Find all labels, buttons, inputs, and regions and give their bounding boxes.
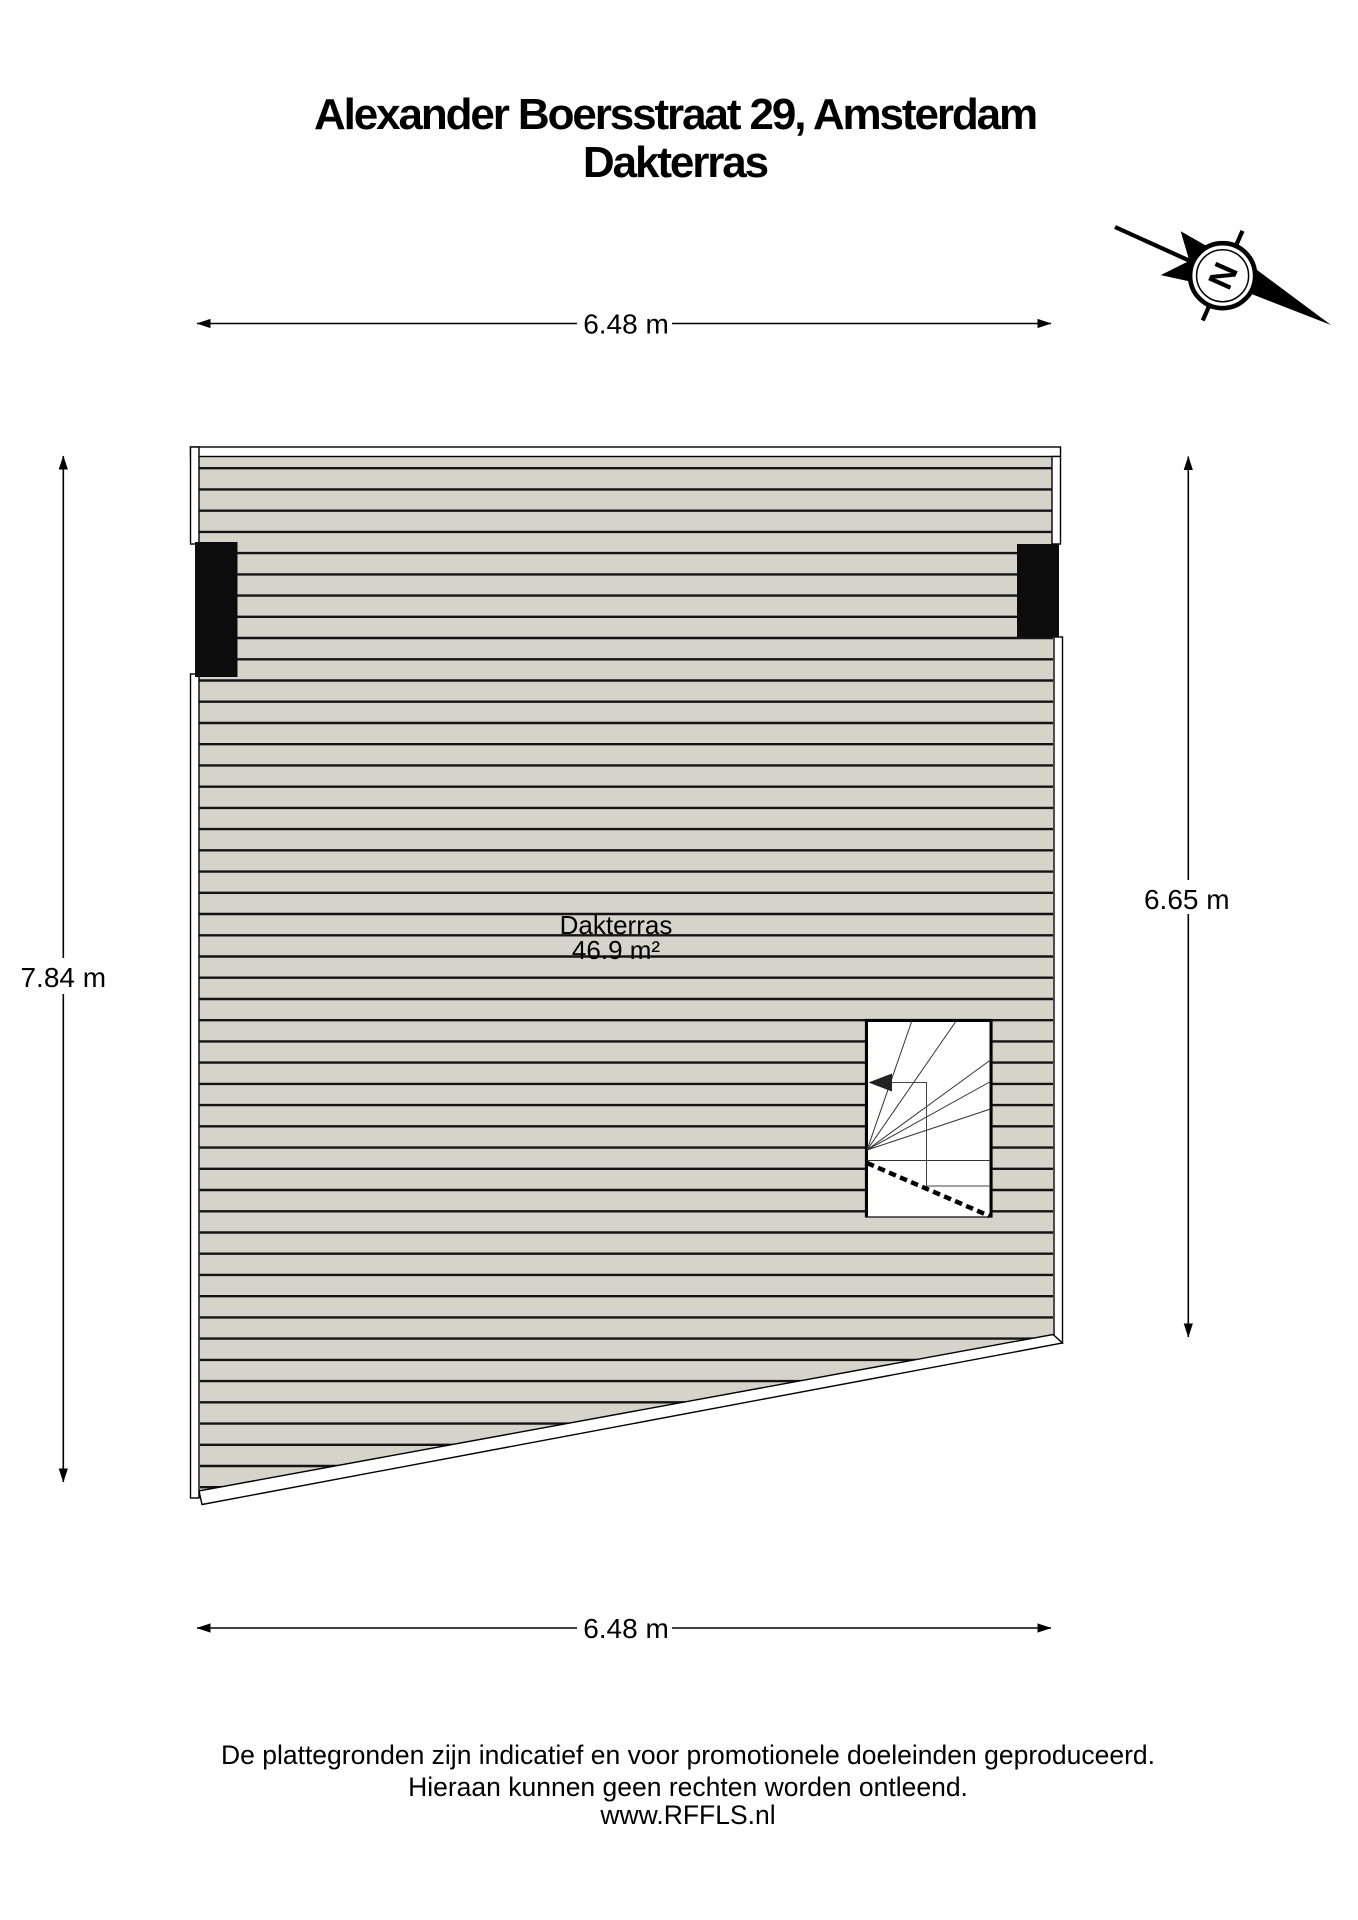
svg-text:Hieraan kunnen geen rechten wo: Hieraan kunnen geen rechten worden ontle… bbox=[408, 1772, 968, 1802]
svg-text:6.48 m: 6.48 m bbox=[583, 309, 669, 340]
svg-text:46.9 m²: 46.9 m² bbox=[572, 935, 660, 965]
svg-text:www.RFFLS.nl: www.RFFLS.nl bbox=[599, 1800, 775, 1830]
svg-text:6.48 m: 6.48 m bbox=[583, 1613, 669, 1644]
svg-text:Dakterras: Dakterras bbox=[583, 138, 768, 187]
svg-text:7.84 m: 7.84 m bbox=[20, 962, 106, 993]
svg-text:De plattegronden zijn indicati: De plattegronden zijn indicatief en voor… bbox=[221, 1740, 1155, 1770]
svg-text:6.65 m: 6.65 m bbox=[1144, 884, 1230, 915]
svg-text:Alexander Boersstraat 29, Amst: Alexander Boersstraat 29, Amsterdam bbox=[314, 90, 1036, 139]
